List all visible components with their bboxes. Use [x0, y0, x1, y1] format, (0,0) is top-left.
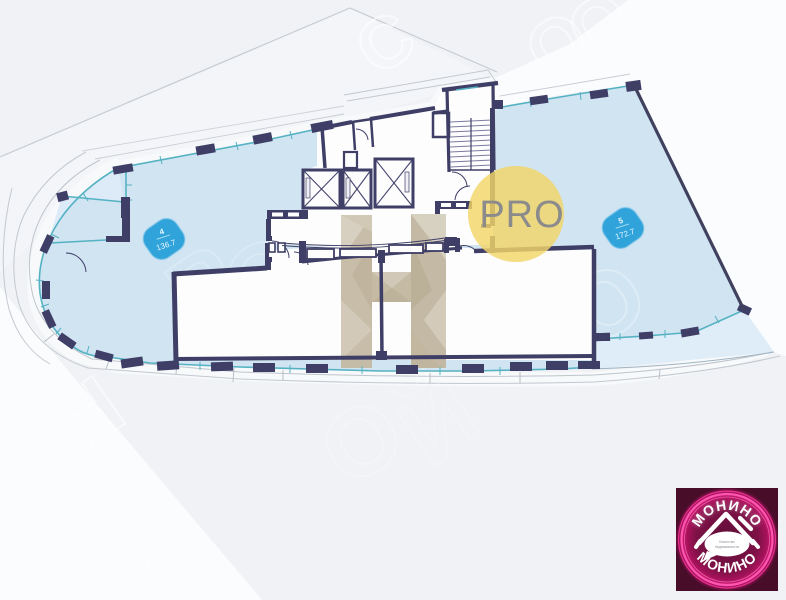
svg-text:PRO: PRO [479, 194, 564, 236]
svg-text:Качество: Качество [719, 540, 734, 544]
svg-text:недвижимости: недвижимости [715, 545, 739, 549]
